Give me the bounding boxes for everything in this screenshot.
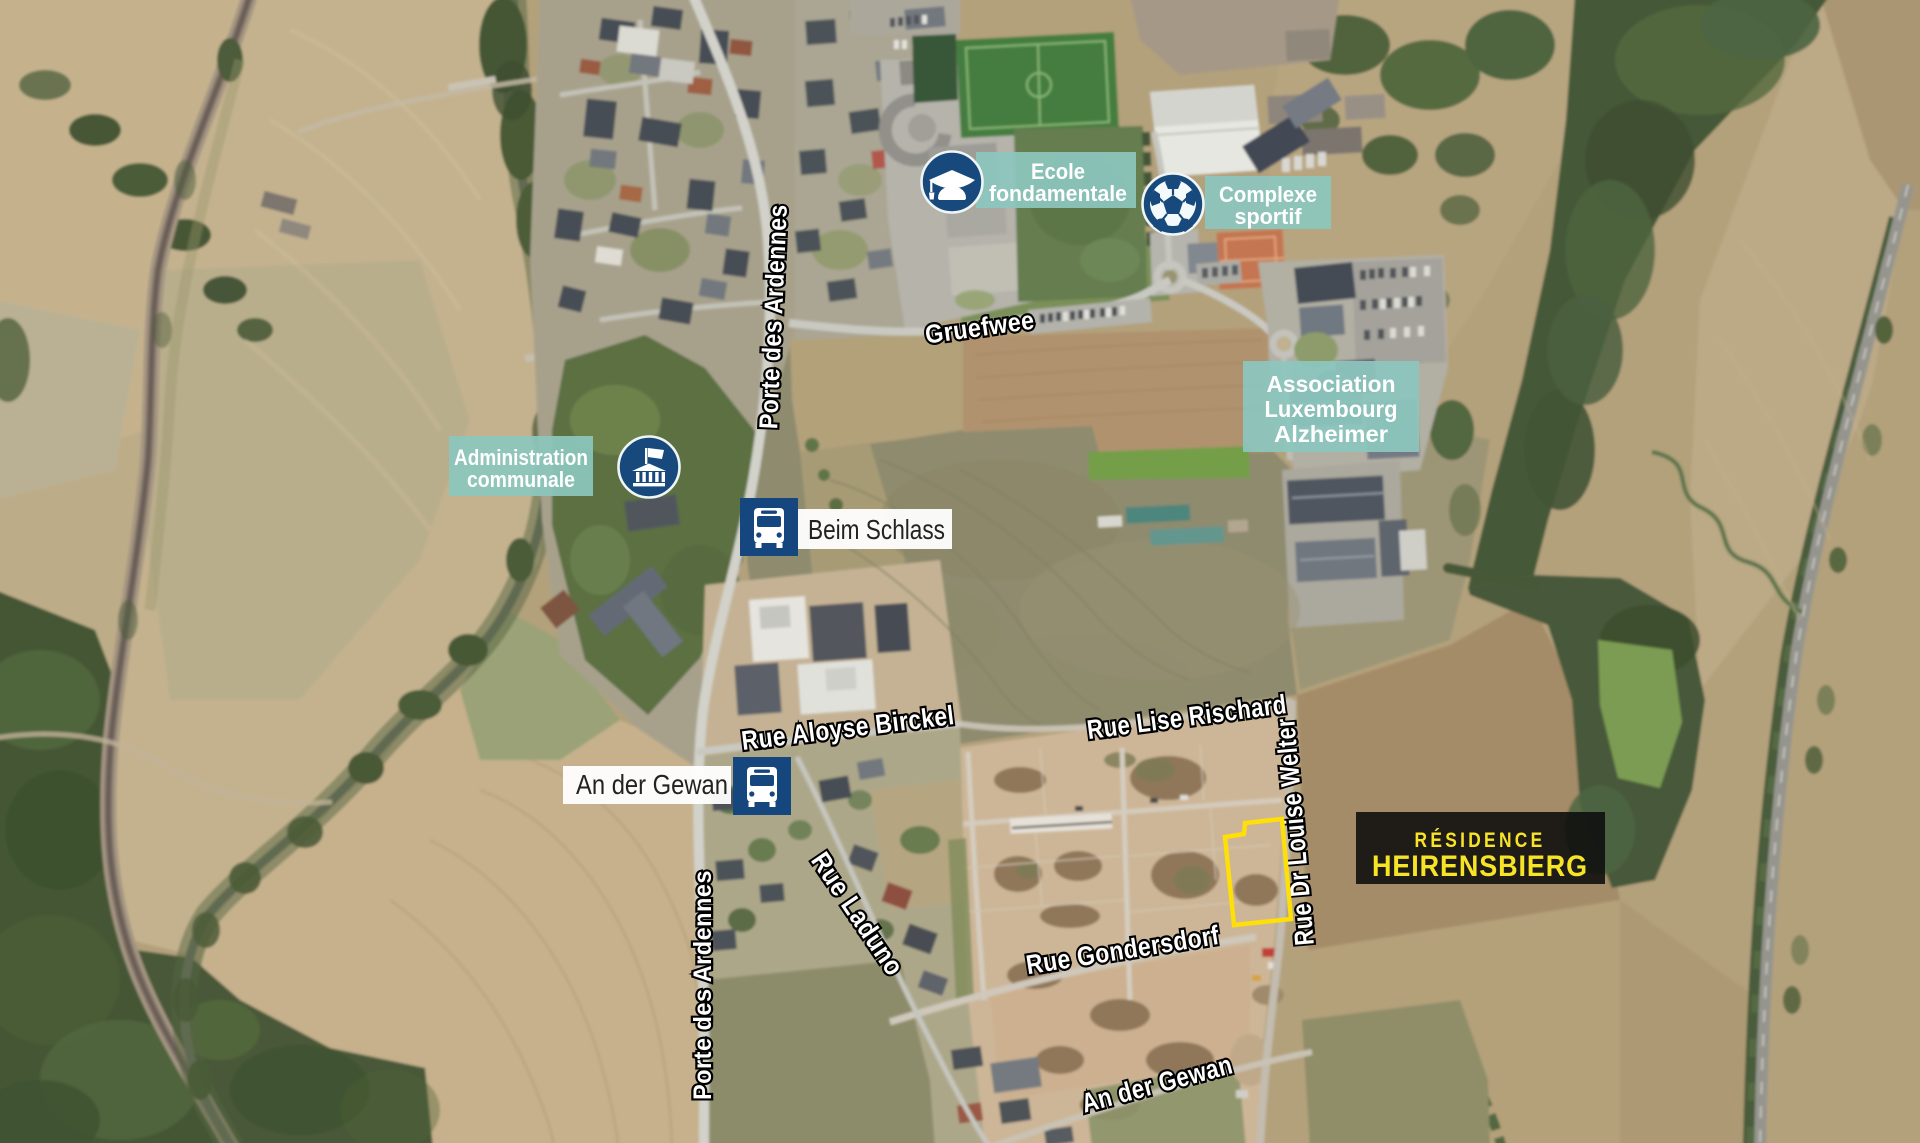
svg-text:HEIRENSBIERG: HEIRENSBIERG: [1372, 850, 1588, 883]
svg-text:communale: communale: [467, 467, 575, 492]
svg-text:Association: Association: [1267, 371, 1396, 397]
svg-text:RÉSIDENCE: RÉSIDENCE: [1415, 829, 1546, 852]
svg-text:Beim Schlass: Beim Schlass: [808, 514, 945, 545]
svg-text:Luxembourg: Luxembourg: [1265, 396, 1398, 422]
svg-text:fondamentale: fondamentale: [989, 181, 1127, 206]
svg-text:Alzheimer: Alzheimer: [1274, 421, 1388, 447]
svg-text:sportif: sportif: [1235, 204, 1303, 229]
svg-text:Porte des Ardennes: Porte des Ardennes: [689, 870, 717, 1100]
svg-text:An der Gewan: An der Gewan: [576, 769, 728, 800]
